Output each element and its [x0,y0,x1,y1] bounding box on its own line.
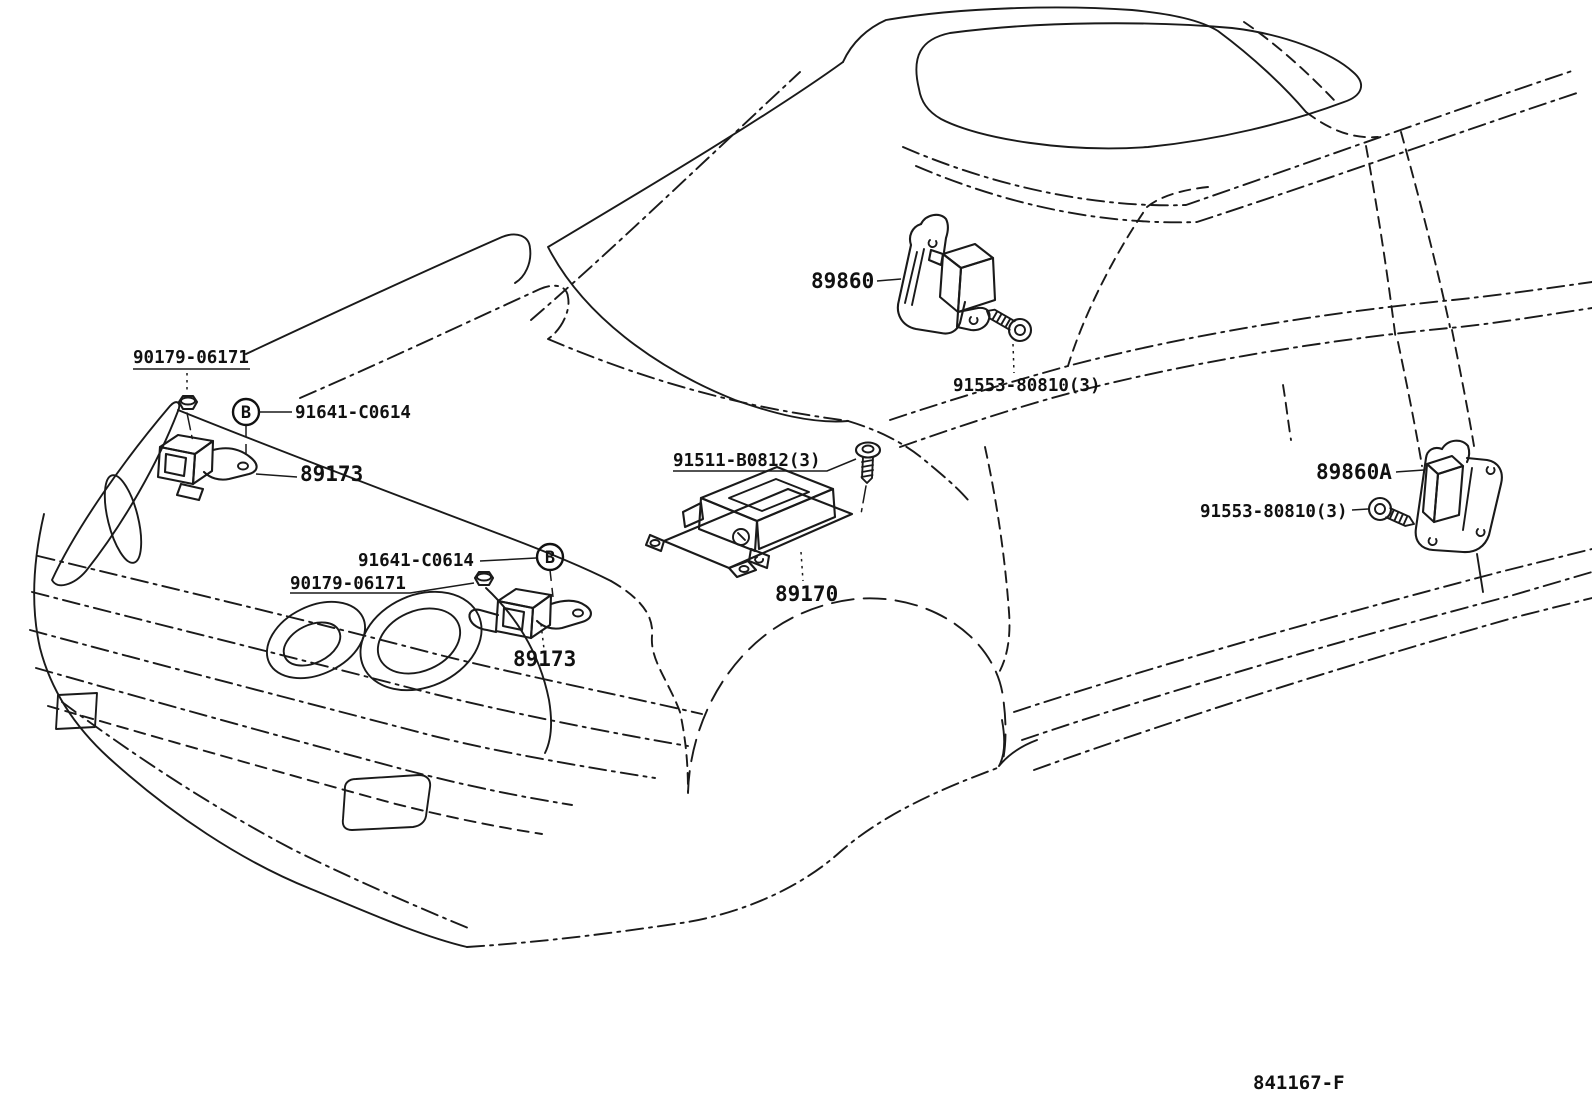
bumper-inner-line [62,702,468,928]
b-pillar-lower-rear [1452,330,1474,446]
drawing-number: 841167-F [1253,1072,1345,1094]
nut-90179-lower-drawing [475,572,493,585]
bracket-plate [898,224,965,334]
b-pillar-lower-front [1398,342,1422,466]
sensor-side-face [531,595,551,638]
fender-front-of-arch [611,581,688,792]
nut-top [477,574,491,581]
label-center-sensor-assembly: 89170 [775,582,838,606]
sensor-89173-front-center-drawing [469,589,590,638]
ecu-front-hole-slot [738,533,745,540]
sensor-box-top [943,244,993,268]
bumper-bottom-extension [467,767,1000,947]
label-side-sensor-rear: 89860A [1316,460,1392,484]
label-nut-front-lower: 90179-06171 [290,574,406,594]
label-side-screw-rear: 91553-80810(3) [1200,502,1348,522]
headlight-left-inner [277,614,348,674]
leader-sensor-upper [256,474,297,477]
sensor-left-tab [469,610,498,632]
leader-side-sensor-rear [1396,470,1424,472]
nut-90179-upper-drawing [179,396,197,409]
wheel-arch [688,598,1006,793]
b-pillar-front [1366,146,1396,341]
sensor-top-face [498,589,551,608]
sensor-box-flange [929,250,943,265]
sensor-89173-front-left-drawing [158,435,257,500]
nut-top [181,398,195,405]
label-side-screw-front: 91553-80810(3) [953,376,1101,396]
label-front-sensor-upper: 89173 [300,462,363,486]
door-shut-middle [1283,385,1291,440]
ecu-top-recess [729,479,809,511]
beltline-1 [890,282,1592,420]
sensor-box-side [1434,466,1463,522]
sunroof [916,23,1361,148]
leader-boltb-lower [480,558,536,561]
leader-boltb-lower-drop [550,570,553,597]
hood-seam [548,339,848,421]
bolt-symbol-b-upper: B [233,399,259,425]
screw-threads [862,457,874,483]
rocker-line-2 [1022,572,1592,740]
bolt-symbol-letter: B [545,548,555,568]
bracket-c-hole-right [1477,529,1485,536]
bracket-c-hole-top [1487,467,1495,474]
drip-rail-2 [916,92,1580,222]
label-side-sensor-front: 89860 [811,269,874,293]
ecu-left-tab [646,535,664,551]
label-nut-front-upper: 90179-06171 [133,348,249,368]
ecu-box-top [701,467,833,521]
bracket-bolt-hole [573,610,583,617]
ecu-bottom-tab-hole [740,566,749,572]
door-glass-rear-edge [1068,187,1208,366]
bracket-bolt-hole [238,463,248,470]
screw-head-center [1015,325,1025,335]
grille-slat-2 [32,592,688,746]
wheel-arch-rear-tip [999,720,1037,766]
part-number-labels: 90179-06171 91641-C0614 89173 91511-B081… [133,269,1392,1094]
label-bolt-b-front-lower: 91641-C0614 [358,551,474,571]
side-sensor-89860a-drawing [1416,441,1502,552]
fender-top-line [246,234,530,354]
ecu-front-tab-hole [755,557,763,563]
leader-side-screw-front [1013,344,1014,373]
screw-91553-front-drawing [987,310,1031,341]
label-center-sensor-screw: 91511-B0812(3) [673,451,821,471]
ecu-left-tab-hole [651,540,660,546]
screw-91511-drawing [856,443,880,484]
airbag-sensor-assembly-89170-drawing [646,467,852,577]
leader-side-screw-rear [1352,509,1368,510]
bracket-inner-line-2 [912,249,924,305]
bracket-inner-line [1463,468,1472,530]
parts-diagram-canvas: B B 90179-06171 91641-C0614 89173 91511-… [0,0,1592,1099]
label-bolt-b-front-upper: 91641-C0614 [295,403,411,423]
c-pillar-line-1 [1306,112,1378,137]
leader-ecu [801,552,803,581]
screw-head [1009,319,1031,341]
fog-lamp-opening [343,775,430,830]
leader-sensor-lower [541,624,544,649]
bracket-c-hole-top [929,240,937,247]
fender-second-line [300,286,568,398]
windshield-a-pillar [548,62,848,421]
rocker-line-3 [1034,598,1592,770]
screw-head-center [863,446,874,453]
headlight-left-outer [254,587,377,694]
leader-side-sensor-front [877,279,901,281]
label-front-sensor-lower: 89173 [513,647,576,671]
leader-center-screw-drop [861,486,866,514]
sensor-foot [177,484,203,500]
corner-lamp-blade [52,402,179,585]
c-pillar-line-2 [1244,22,1334,100]
bolt-symbol-letter: B [241,403,251,423]
sensor-connector-opening [165,454,186,476]
ecu-bottom-tab [729,561,756,577]
side-sensor-89860-drawing [898,215,995,334]
sensor-top-face [160,435,213,454]
bracket-c-hole-left [1429,538,1437,545]
bracket-c-hole-bottom [970,317,978,324]
screw-head-center [1375,504,1385,514]
grille-slat-4 [36,668,572,805]
screw-head [1369,498,1391,520]
rocker-line-1 [1014,549,1592,712]
drip-rail-1 [903,70,1575,205]
sensor-front-face [158,447,195,484]
b-pillar-rear [1401,132,1450,327]
screw-91553-rear-drawing [1369,498,1414,526]
front-door-shut-line [985,447,1010,676]
b-pillar-below-sensor [1477,554,1483,592]
